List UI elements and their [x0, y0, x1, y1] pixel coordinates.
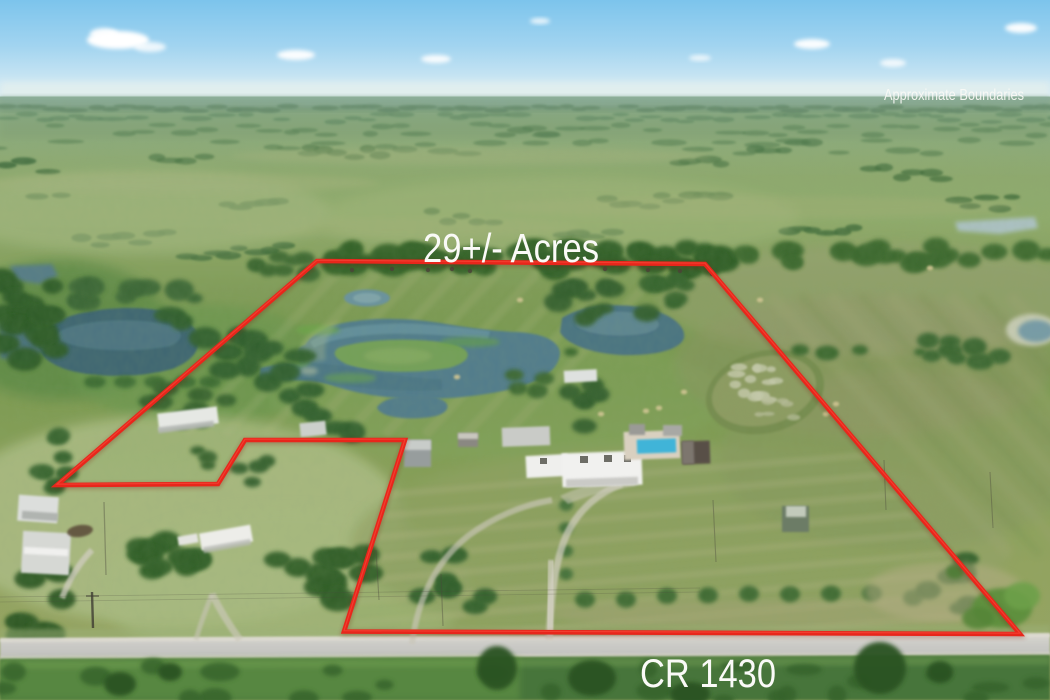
svg-text:Approximate Boundaries: Approximate Boundaries	[884, 87, 1024, 104]
svg-text:CR 1430: CR 1430	[640, 652, 776, 696]
svg-text:29+/- Acres: 29+/- Acres	[423, 225, 599, 271]
